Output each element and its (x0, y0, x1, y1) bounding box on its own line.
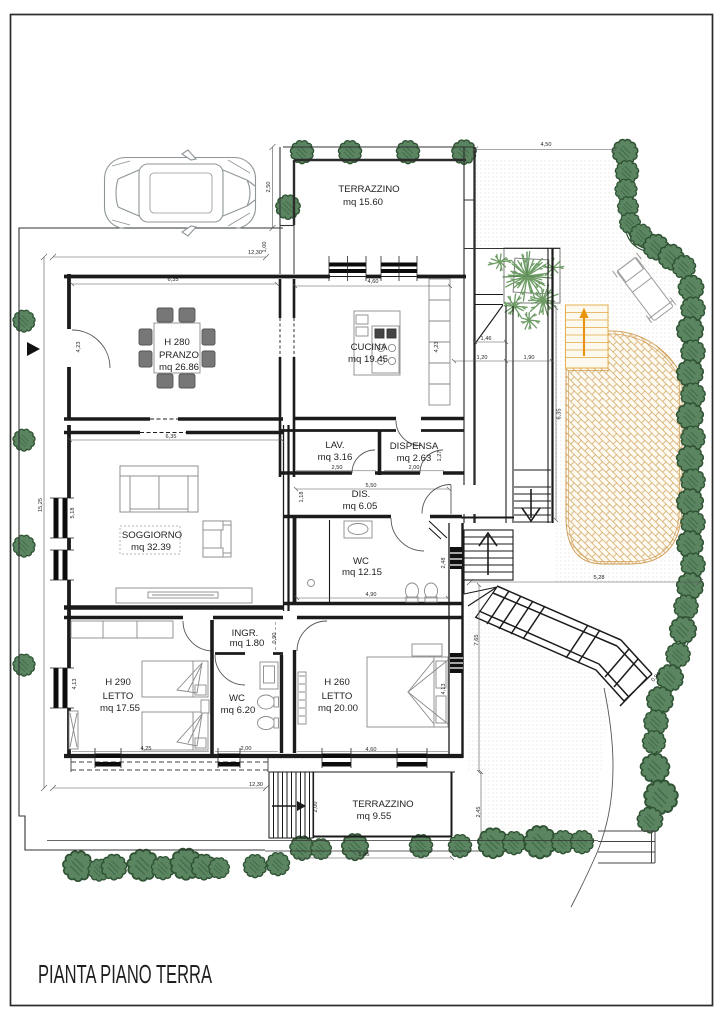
svg-text:5,18: 5,18 (70, 508, 76, 519)
svg-text:mq 26.86: mq 26.86 (159, 362, 199, 373)
svg-text:mq 3.16: mq 3.16 (318, 452, 353, 463)
svg-text:0,90: 0,90 (272, 633, 278, 644)
svg-text:5,50: 5,50 (366, 483, 377, 489)
svg-text:mq 32.39: mq 32.39 (131, 542, 171, 553)
svg-text:4,90: 4,90 (366, 592, 377, 598)
svg-text:LETTO: LETTO (322, 691, 353, 702)
svg-text:H 290: H 290 (105, 677, 131, 688)
svg-text:LAV.: LAV. (325, 440, 344, 451)
svg-text:PRANZO: PRANZO (159, 350, 199, 361)
svg-text:TERRAZZINO: TERRAZZINO (338, 184, 399, 195)
svg-text:4,23: 4,23 (434, 342, 440, 353)
svg-text:mq 6.05: mq 6.05 (343, 501, 378, 512)
svg-text:1,46: 1,46 (481, 336, 492, 342)
svg-text:4,60: 4,60 (368, 279, 379, 285)
svg-text:mq 15.60: mq 15.60 (343, 197, 383, 208)
svg-text:mq 20.00: mq 20.00 (318, 703, 358, 714)
svg-text:4,25: 4,25 (141, 746, 152, 752)
svg-text:6,35: 6,35 (166, 434, 177, 440)
svg-text:H 260: H 260 (324, 677, 350, 688)
svg-text:H 280: H 280 (164, 337, 190, 348)
svg-text:2,50: 2,50 (332, 465, 343, 471)
svg-text:2,50: 2,50 (266, 182, 272, 193)
svg-text:4,13: 4,13 (441, 684, 447, 695)
svg-text:2,48: 2,48 (441, 558, 447, 569)
svg-text:1,20: 1,20 (477, 355, 488, 361)
svg-text:7,65: 7,65 (474, 635, 480, 646)
svg-text:DIS.: DIS. (352, 489, 371, 500)
svg-text:4,13: 4,13 (72, 679, 78, 690)
svg-text:1,90: 1,90 (524, 355, 535, 361)
svg-text:SOGGIORNO: SOGGIORNO (122, 530, 182, 541)
svg-text:4,60: 4,60 (366, 747, 377, 753)
svg-text:6,35: 6,35 (557, 409, 563, 420)
svg-text:2,45: 2,45 (476, 807, 482, 818)
svg-text:mq 17.55: mq 17.55 (100, 703, 140, 714)
svg-text:4,50: 4,50 (541, 142, 552, 148)
svg-text:mq 6.20: mq 6.20 (221, 705, 256, 716)
svg-text:1,00: 1,00 (262, 242, 268, 253)
svg-text:mq 12.15: mq 12.15 (342, 567, 382, 578)
svg-text:2,00: 2,00 (409, 465, 420, 471)
svg-text:mq 2.63: mq 2.63 (397, 453, 432, 464)
svg-text:WC: WC (229, 693, 245, 704)
svg-text:15,25: 15,25 (38, 498, 44, 512)
svg-text:4,23: 4,23 (76, 342, 82, 353)
svg-text:mq 1.80: mq 1.80 (230, 638, 265, 649)
svg-text:12,30: 12,30 (249, 782, 263, 788)
svg-text:2,00: 2,00 (313, 802, 319, 813)
svg-text:12,30: 12,30 (248, 250, 262, 256)
svg-text:CUCINA: CUCINA (351, 342, 388, 353)
svg-text:1,18: 1,18 (299, 492, 305, 503)
svg-text:LETTO: LETTO (103, 691, 134, 702)
svg-text:1,27: 1,27 (437, 451, 443, 462)
svg-text:6,35: 6,35 (168, 277, 179, 283)
svg-text:TERRAZZINO: TERRAZZINO (352, 799, 413, 810)
svg-text:mq 19.45: mq 19.45 (348, 354, 388, 365)
svg-text:WC: WC (353, 556, 369, 567)
svg-text:PIANTA PIANO TERRA: PIANTA PIANO TERRA (38, 961, 212, 989)
svg-text:5,28: 5,28 (594, 575, 605, 581)
svg-text:mq 9.55: mq 9.55 (357, 811, 392, 822)
svg-text:2,00: 2,00 (241, 746, 252, 752)
svg-text:5,85: 5,85 (359, 852, 370, 858)
svg-text:DISPENSA: DISPENSA (390, 441, 439, 452)
